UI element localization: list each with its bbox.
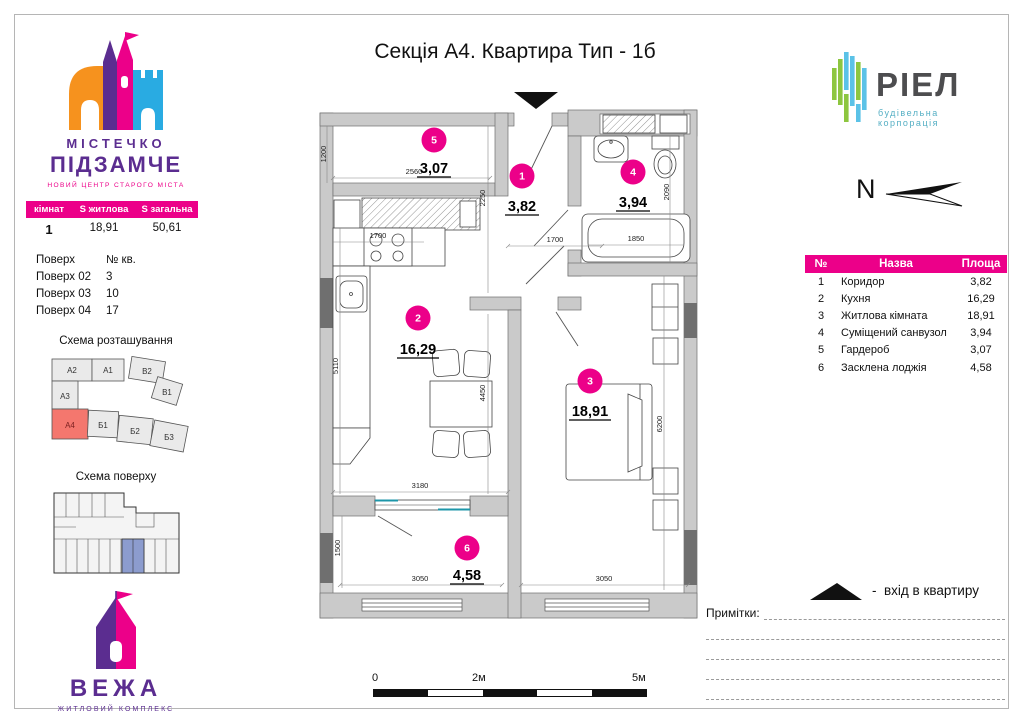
shaft — [334, 200, 360, 230]
notes-label: Примітки: — [706, 606, 764, 620]
nightstand — [653, 338, 678, 364]
summary-table-row: 1 18,91 50,61 — [26, 218, 198, 241]
rooms-table: № Назва Площа 1 Коридор 3,82 2 Кухня 16,… — [805, 255, 1007, 376]
page: МІСТЕЧКО ПІДЗАМЧЕ НОВИЙ ЦЕНТР СТАРОГО МІ… — [0, 0, 1024, 728]
rooms-table-header: № Назва Площа — [805, 255, 1007, 273]
scale-label-0: 0 — [372, 672, 378, 684]
castle-flag — [125, 32, 139, 41]
location-label-v1: В1 — [162, 388, 172, 397]
tower-flag — [116, 591, 133, 600]
floors-row: Поверх 02 3 — [36, 268, 206, 285]
rooms-table-row: 3 Житлова кімната 18,91 — [805, 307, 1007, 324]
dim-3050-loggia: 3050 — [412, 574, 429, 583]
page-title: Секція А4. Квартира Тип - 1б — [300, 40, 730, 64]
badge-number: 4 — [630, 167, 636, 179]
closet-section — [460, 201, 476, 227]
dim-2250: 2250 — [478, 190, 487, 207]
dim-1500: 1500 — [333, 540, 342, 557]
floor-label: Поверх 02 — [36, 271, 106, 283]
rooms-table-row: 6 Засклена лоджія 4,58 — [805, 359, 1007, 376]
tower-door — [110, 641, 122, 662]
badge-number: 3 — [587, 376, 593, 388]
apt-number: 3 — [106, 271, 166, 283]
room-area-label: 3,82 — [508, 199, 536, 215]
mistechko-castle-icon — [61, 32, 171, 134]
location-label-a3: А3 — [60, 392, 70, 401]
plan-walls — [320, 110, 697, 618]
room-area-label: 18,91 — [572, 404, 608, 420]
room-name: Коридор — [837, 276, 955, 288]
scale-bar: 0 2м 5м — [372, 672, 648, 702]
summary-value-living: 18,91 — [72, 222, 136, 237]
room-area: 3,07 — [955, 344, 1007, 356]
badge-number: 5 — [431, 135, 437, 147]
washing-machine-icon — [603, 115, 655, 133]
north-arrow-icon — [884, 178, 966, 212]
floor-plan: 1200 2560 2250 1700 1700 1850 2090 5110 … — [312, 88, 712, 648]
boiler-icon — [660, 115, 687, 133]
summary-table: кімнат S житлова S загальна 1 18,91 50,6… — [26, 201, 198, 241]
room-name: Суміщений санвузол — [837, 327, 955, 339]
castle-tower-purple — [103, 62, 117, 130]
room-name: Кухня — [837, 293, 955, 305]
north-label: N — [856, 174, 876, 205]
summary-header-living: S житлова — [72, 204, 136, 215]
room-num: 6 — [805, 362, 837, 374]
room-badge-2: 2 16,29 — [397, 306, 439, 359]
vezha-tagline: ЖИТЛОВИЙ КОМПЛЕКС — [26, 706, 206, 713]
dim-1850: 1850 — [628, 234, 645, 243]
rooms-table-row: 2 Кухня 16,29 — [805, 290, 1007, 307]
nightstand — [653, 468, 678, 494]
castle-merlon — [145, 70, 153, 79]
entrance-legend-icon — [810, 583, 864, 601]
entrance-legend: - вхід в квартиру — [810, 581, 1010, 603]
floors-header-floor: Поверх — [36, 254, 106, 266]
riel-logo: РІЕЛ будівельна корпорація — [830, 46, 1000, 136]
dim-5110: 5110 — [331, 358, 340, 374]
scale-label-2m: 2м — [472, 672, 486, 684]
room-area-label: 3,94 — [619, 195, 647, 211]
room-num: 2 — [805, 293, 837, 305]
dim-3180: 3180 — [412, 481, 429, 490]
room-area: 3,82 — [955, 276, 1007, 288]
room-name: Житлова кімната — [837, 310, 955, 322]
floors-row: Поверх 03 10 — [36, 285, 206, 302]
dim-6200: 6200 — [655, 416, 664, 433]
floor-label: Поверх 04 — [36, 305, 106, 317]
dim-1700-kitchen: 1700 — [370, 231, 387, 240]
room-area-label: 4,58 — [453, 568, 481, 584]
room-name: Засклена лоджія — [837, 362, 955, 374]
apt-number: 17 — [106, 305, 166, 317]
entrance-arrow — [514, 92, 558, 109]
floors-header-apt: № кв. — [106, 254, 166, 266]
summary-header-rooms: кімнат — [26, 204, 72, 215]
castle-door — [141, 108, 155, 130]
badge-number: 6 — [464, 543, 470, 555]
dim-3050-living: 3050 — [596, 574, 613, 583]
scale-label-5m: 5м — [632, 672, 646, 684]
loggia-glazing — [375, 500, 470, 510]
riel-name: РІЕЛ — [876, 66, 960, 104]
castle-arch-opening — [81, 100, 99, 130]
badge-number: 1 — [519, 171, 525, 183]
castle-spire-purple — [103, 40, 117, 62]
castle-merlon — [133, 70, 141, 79]
notes-line — [764, 606, 1005, 620]
riel-tagline: будівельна корпорація — [878, 108, 1000, 128]
riel-bars-icon — [830, 46, 872, 130]
location-label-a2: А2 — [67, 366, 77, 375]
room-badge-4: 4 3,94 — [616, 160, 650, 212]
room-area-label: 3,07 — [420, 161, 448, 177]
logo-line1: МІСТЕЧКО — [26, 136, 206, 151]
castle-window — [121, 76, 128, 88]
floors-row: Поверх 04 17 — [36, 302, 206, 319]
location-label-b3: Б3 — [164, 433, 174, 442]
room-area: 3,94 — [955, 327, 1007, 339]
room-area-label: 16,29 — [400, 342, 436, 358]
floor-scheme — [46, 487, 186, 577]
rooms-header-area: Площа — [955, 258, 1007, 270]
room-area: 4,58 — [955, 362, 1007, 374]
location-scheme-title: Схема розташування — [26, 335, 206, 347]
notes-line — [706, 620, 1005, 640]
sidebar: МІСТЕЧКО ПІДЗАМЧЕ НОВИЙ ЦЕНТР СТАРОГО МІ… — [26, 26, 206, 713]
room-area: 16,29 — [955, 293, 1007, 305]
location-label-b2: Б2 — [130, 427, 140, 436]
location-label-v2: В2 — [142, 367, 152, 376]
bed-icon — [566, 384, 652, 480]
location-label-a1: А1 — [103, 366, 113, 375]
room-num: 1 — [805, 276, 837, 288]
scale-bar-segments — [373, 689, 647, 697]
logo-tagline: НОВИЙ ЦЕНТР СТАРОГО МІСТА — [26, 182, 206, 189]
summary-value-total: 50,61 — [136, 222, 198, 237]
floor-label: Поверх 03 — [36, 288, 106, 300]
notes-line — [706, 640, 1005, 660]
rooms-table-row: 1 Коридор 3,82 — [805, 273, 1007, 290]
north-compass: N — [856, 174, 976, 214]
rooms-header-name: Назва — [837, 258, 955, 270]
notes-line — [706, 680, 1005, 700]
rooms-table-row: 4 Суміщений санвузол 3,94 — [805, 325, 1007, 342]
floors-header: Поверх № кв. — [36, 251, 206, 268]
summary-table-header: кімнат S житлова S загальна — [26, 201, 198, 218]
room-badge-5: 5 3,07 — [417, 128, 451, 178]
location-scheme: А2 А1 В2 В1 А3 А4 Б1 Б2 Б3 — [30, 351, 202, 455]
counter-end — [333, 428, 370, 464]
castle-tower-pink — [117, 60, 133, 130]
dim-1200: 1200 — [319, 146, 328, 163]
room-num: 5 — [805, 344, 837, 356]
badge-number: 2 — [415, 313, 421, 325]
room-name: Гардероб — [837, 344, 955, 356]
apt-number: 10 — [106, 288, 166, 300]
logo-line2: ПІДЗАМЧЕ — [26, 152, 206, 178]
room-num: 4 — [805, 327, 837, 339]
bath-sink-icon — [594, 136, 628, 162]
dresser — [653, 500, 678, 530]
room-badge-1: 1 3,82 — [505, 164, 539, 216]
dim-2090: 2090 — [662, 184, 671, 201]
summary-header-total: S загальна — [136, 204, 198, 215]
rooms-table-row: 5 Гардероб 3,07 — [805, 342, 1007, 359]
vezha-tower-icon — [86, 591, 146, 671]
room-badge-6: 6 4,58 — [450, 536, 484, 585]
rooms-header-num: № — [805, 258, 837, 270]
room-area: 18,91 — [955, 310, 1007, 322]
notes-block: Примітки: — [706, 606, 1005, 700]
location-label-a4: А4 — [65, 421, 75, 430]
summary-value-rooms: 1 — [26, 222, 72, 237]
toilet-icon — [652, 136, 679, 178]
dim-4450: 4450 — [478, 385, 487, 402]
notes-line — [706, 660, 1005, 680]
castle-merlon — [157, 70, 163, 79]
entrance-legend-text: - вхід в квартиру — [872, 583, 979, 598]
location-label-b1: Б1 — [98, 421, 108, 430]
floor-scheme-title: Схема поверху — [26, 471, 206, 483]
dim-1700-hall: 1700 — [547, 235, 564, 244]
vezha-name: ВЕЖА — [26, 675, 206, 703]
room-num: 3 — [805, 310, 837, 322]
kitchen-sink-icon — [336, 276, 367, 312]
floors-table: Поверх № кв. Поверх 02 3 Поверх 03 10 По… — [36, 251, 206, 319]
